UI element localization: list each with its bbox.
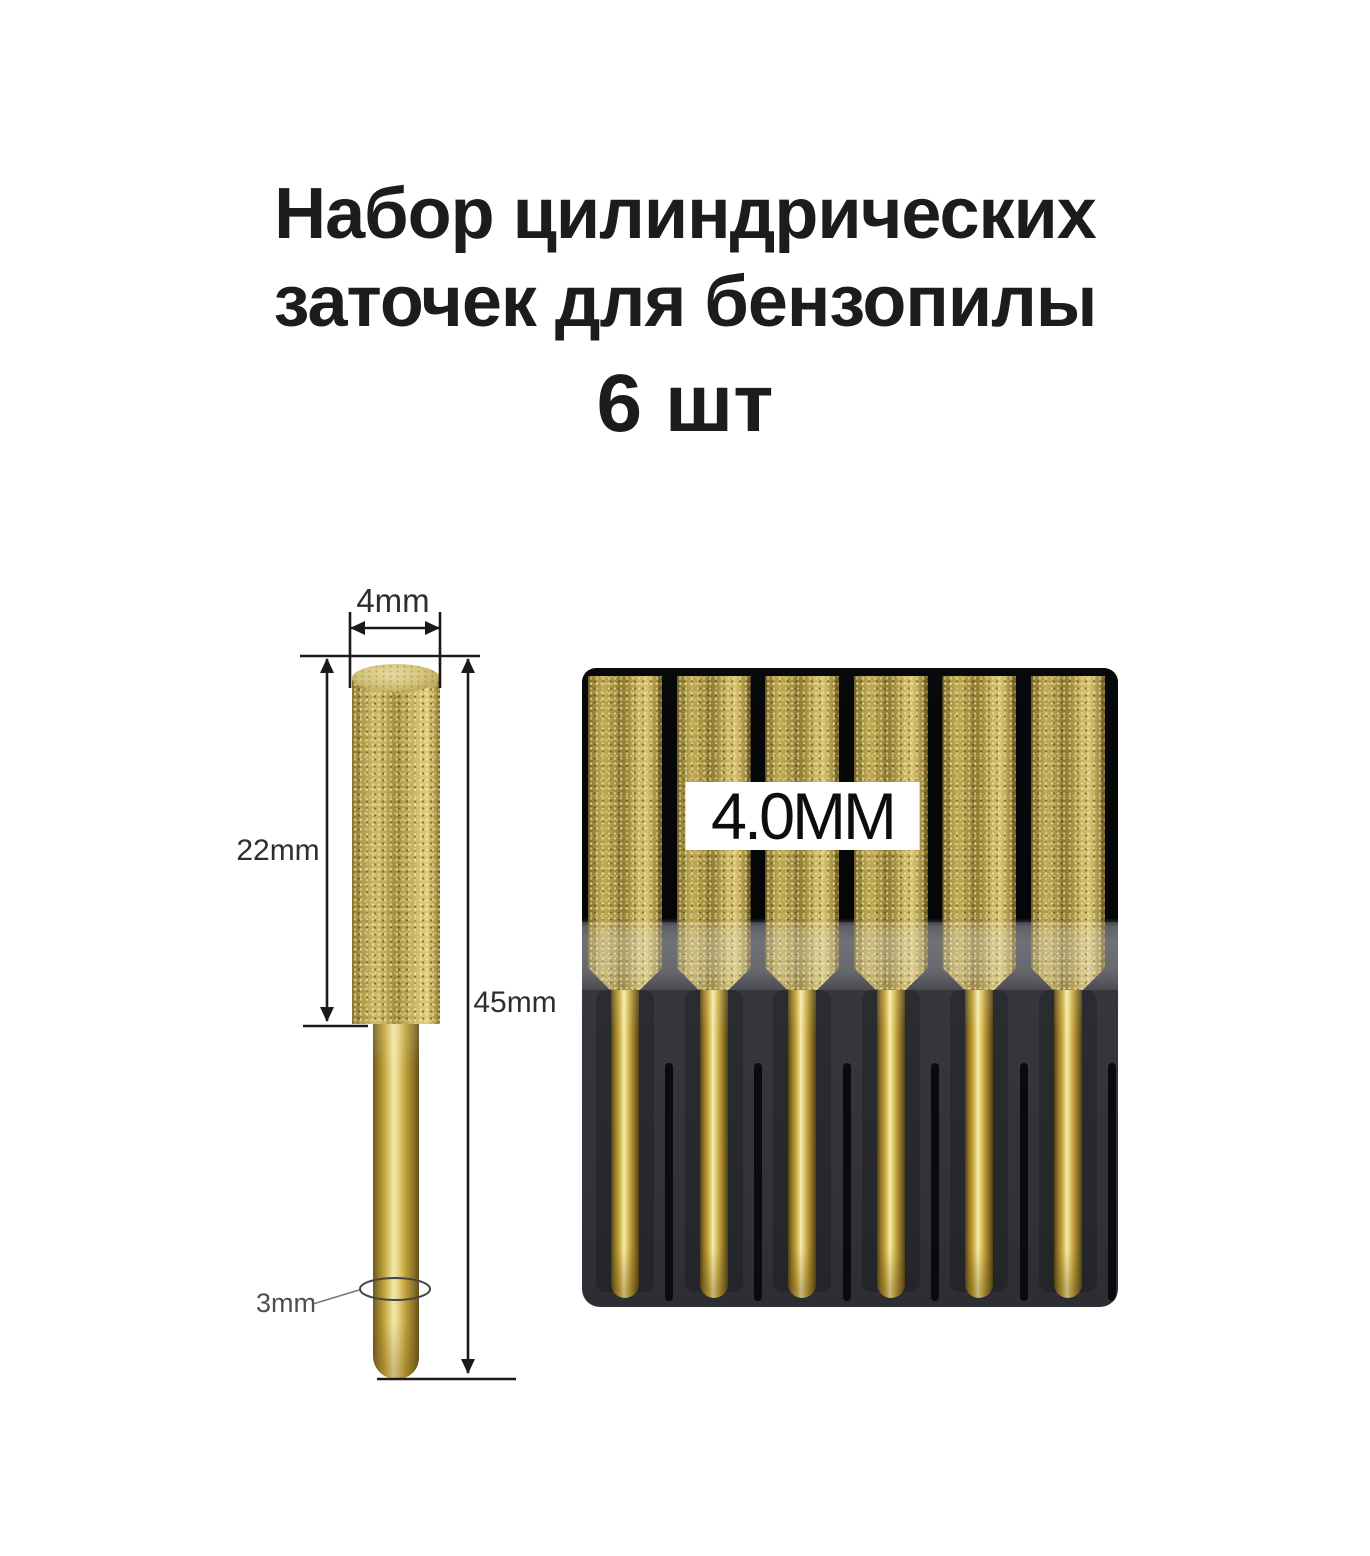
dim-shank-callout [313,1278,430,1304]
tray-groove [843,1063,851,1301]
bit-shank [611,990,639,1298]
dim-label-shank-diameter: 3mm [256,1286,316,1320]
tray-groove [665,1063,673,1301]
tray-groove [931,1063,939,1301]
bit-shank [965,990,993,1298]
retainer-strip [582,922,1118,990]
bit-shank [700,990,728,1298]
bit-shank [1054,990,1082,1298]
product-title-line-2: заточек для бензопилы [0,258,1370,346]
tray-groove [1108,1063,1116,1301]
product-photo-package: 4.0MM [582,668,1118,1307]
product-title-line-1: Набор цилиндрических [0,170,1370,258]
dim-label-head-length: 22mm [236,834,319,868]
piece-count: 6 шт [0,362,1370,446]
product-card: Набор цилиндрических заточек для бензопи… [0,0,1370,1556]
bit-shank [877,990,905,1298]
dim-label-total-length: 45mm [473,986,556,1020]
dimension-diagram: 4mm 22mm 45mm 3mm [230,560,580,1420]
tray-groove [754,1063,762,1301]
dim-label-head-diameter: 4mm [356,584,429,618]
title-block: Набор цилиндрических заточек для бензопи… [0,170,1370,446]
bit-shank [788,990,816,1298]
tray-groove [1020,1063,1028,1301]
size-label: 4.0MM [685,782,919,850]
dim-head-diameter-lines [350,612,440,688]
